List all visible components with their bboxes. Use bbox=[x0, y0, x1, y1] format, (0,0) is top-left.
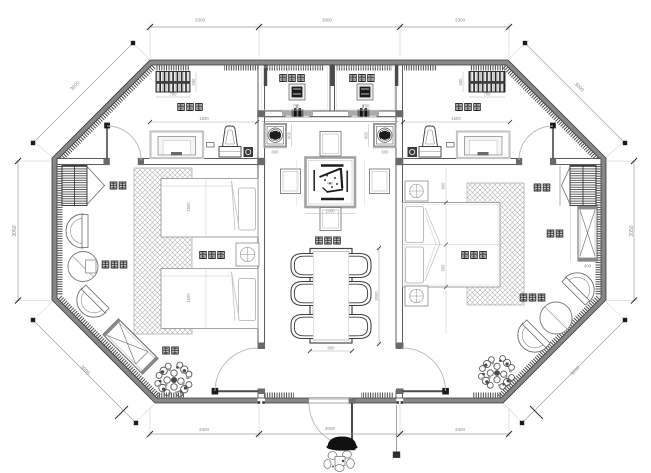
svg-text:700: 700 bbox=[170, 92, 178, 97]
svg-text:600: 600 bbox=[382, 150, 390, 155]
svg-text:438: 438 bbox=[327, 181, 334, 186]
svg-text:750: 750 bbox=[363, 104, 371, 109]
svg-text:900: 900 bbox=[441, 264, 446, 272]
svg-text:3000: 3000 bbox=[79, 364, 91, 376]
svg-text:600: 600 bbox=[364, 131, 369, 139]
svg-text:3000: 3000 bbox=[322, 18, 333, 23]
svg-text:500: 500 bbox=[458, 78, 463, 86]
svg-text:900: 900 bbox=[369, 74, 374, 82]
svg-text:600: 600 bbox=[287, 131, 292, 139]
svg-text:500: 500 bbox=[191, 78, 196, 86]
svg-text:700: 700 bbox=[484, 92, 492, 97]
svg-text:1500: 1500 bbox=[451, 116, 461, 121]
svg-text:2300: 2300 bbox=[455, 18, 466, 23]
svg-text:900: 900 bbox=[441, 182, 446, 190]
svg-text:1500: 1500 bbox=[199, 116, 209, 121]
svg-text:400: 400 bbox=[584, 264, 592, 269]
svg-text:3050: 3050 bbox=[629, 225, 635, 236]
svg-text:750: 750 bbox=[293, 104, 301, 109]
svg-text:2300: 2300 bbox=[195, 18, 206, 23]
svg-text:1000: 1000 bbox=[325, 209, 335, 214]
svg-text:800: 800 bbox=[328, 346, 336, 351]
svg-text:3000: 3000 bbox=[69, 80, 81, 92]
svg-text:2300: 2300 bbox=[199, 427, 210, 432]
svg-text:2000: 2000 bbox=[374, 291, 379, 301]
svg-text:3000: 3000 bbox=[573, 81, 585, 93]
svg-text:1500: 1500 bbox=[186, 202, 191, 212]
svg-text:3050: 3050 bbox=[12, 225, 18, 236]
svg-text:1500: 1500 bbox=[186, 293, 191, 303]
svg-text:3000: 3000 bbox=[569, 365, 581, 377]
svg-text:600: 600 bbox=[272, 150, 280, 155]
svg-text:3000: 3000 bbox=[325, 426, 336, 431]
svg-text:900: 900 bbox=[282, 74, 287, 82]
svg-text:2300: 2300 bbox=[455, 427, 466, 432]
